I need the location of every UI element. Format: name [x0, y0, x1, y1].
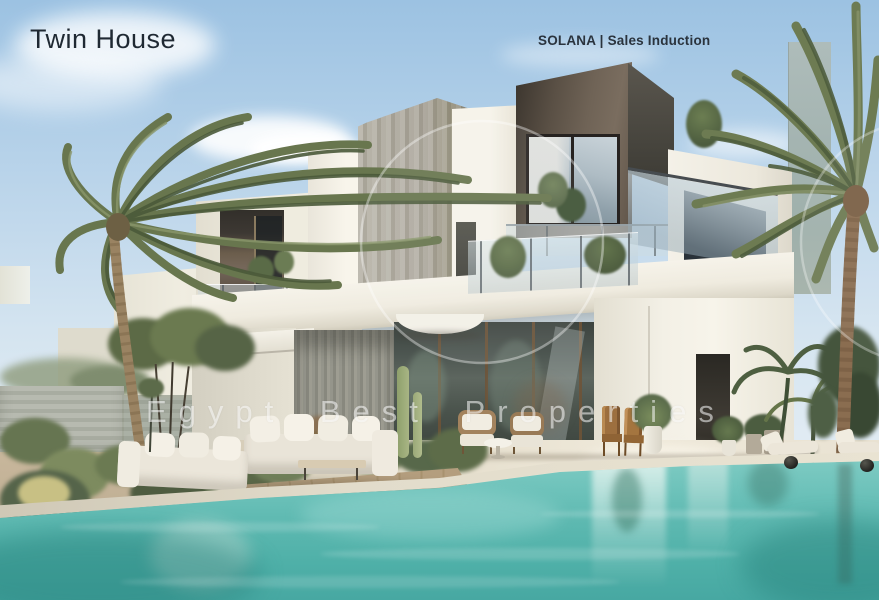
pool-dark-corner — [740, 520, 879, 600]
pool-reflection-plant — [612, 468, 642, 532]
coffee-table — [298, 460, 366, 480]
listing-photo: Egypt Best Properties Twin House SOLANA … — [0, 0, 879, 600]
sofa-cushion — [179, 432, 209, 458]
sofa-cushion — [212, 436, 241, 461]
round-side-table — [484, 438, 512, 460]
pool-edge-light — [860, 459, 874, 472]
project-label: SOLANA | Sales Induction — [538, 33, 710, 48]
pool-ripple — [540, 510, 820, 518]
pool-ripple — [320, 548, 740, 560]
photo-title: Twin House — [30, 24, 176, 55]
pool-ripple — [120, 576, 620, 588]
pool-reflection-plant — [748, 460, 788, 506]
pool-caustic — [300, 490, 560, 540]
watermark-text: Egypt Best Properties — [146, 394, 726, 430]
sofa-arm — [372, 430, 398, 476]
pool-reflection-pillar — [688, 456, 728, 556]
pool-edge-light — [784, 456, 798, 469]
sofa-side — [117, 431, 250, 496]
sofa-arm — [117, 441, 141, 488]
pool-ripple — [60, 522, 380, 532]
